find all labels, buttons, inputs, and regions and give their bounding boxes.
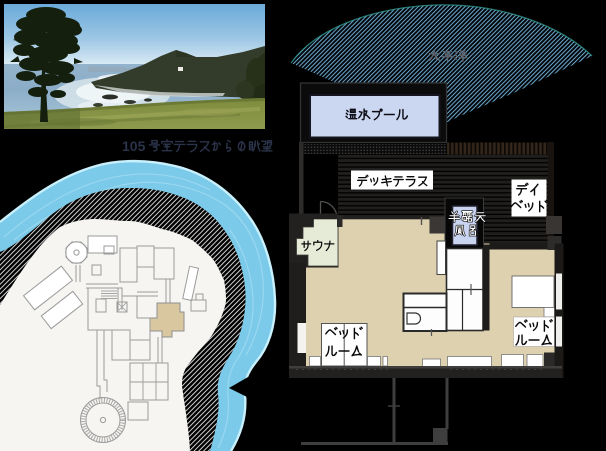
- svg-text:105: 105: [122, 138, 146, 154]
